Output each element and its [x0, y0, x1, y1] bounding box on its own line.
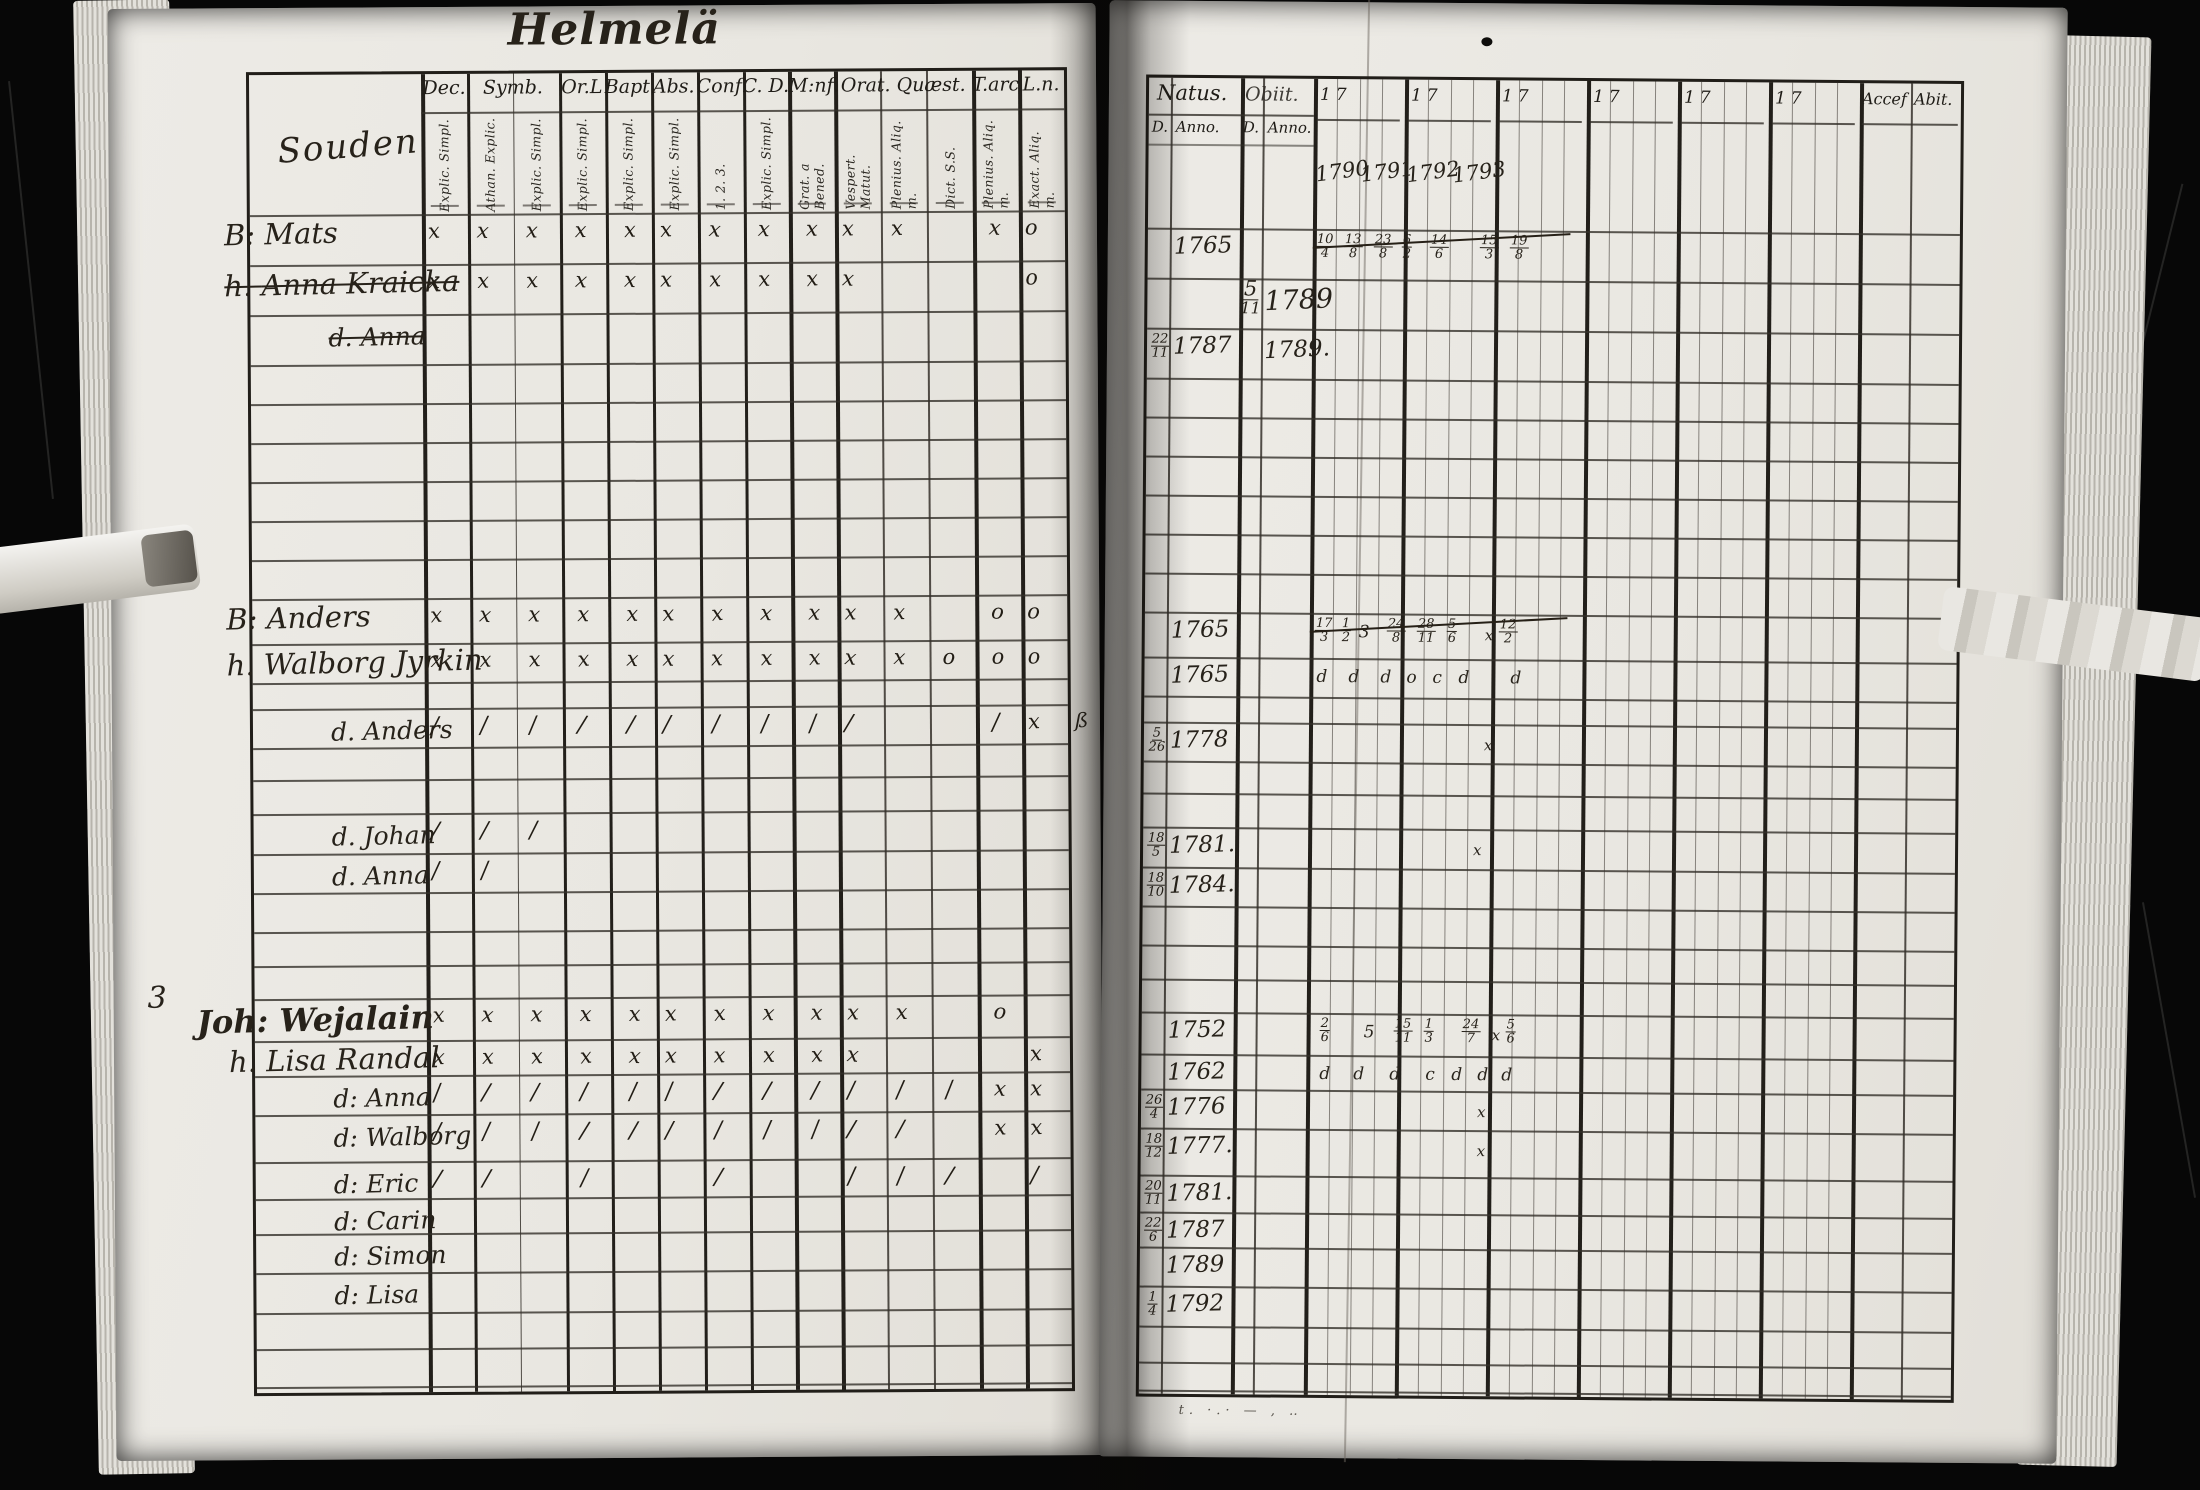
- communion-mark: 3: [1359, 622, 1370, 642]
- fraction-month: 4: [1321, 247, 1329, 260]
- reading-mark: x: [845, 600, 857, 624]
- reading-mark: /: [432, 1080, 442, 1107]
- person-name-text: Joh: Wejalain: [196, 998, 434, 1042]
- household-label: Souden: [276, 121, 420, 172]
- reading-mark: /: [629, 1118, 638, 1144]
- year-subcolumn-line: [1713, 82, 1725, 1398]
- year-subcolumn-line: [1622, 81, 1634, 1397]
- communion-mark: d: [1451, 1065, 1462, 1085]
- reading-mark: x: [994, 1076, 1007, 1101]
- person-name-text: Eric: [366, 1168, 419, 1198]
- reading-mark: /: [481, 1080, 490, 1106]
- column-group-header-10: L.n.: [1018, 73, 1064, 95]
- obiit-day-value: 511: [1240, 278, 1261, 316]
- person-name: d: Walborg: [333, 1121, 471, 1153]
- reading-mark: x: [806, 217, 818, 241]
- fraction-month: 8: [1379, 247, 1387, 260]
- reading-mark: /: [482, 1166, 491, 1192]
- reading-mark: x: [525, 268, 539, 293]
- communion-date: 2811: [1417, 618, 1436, 645]
- reading-mark: /: [665, 1118, 673, 1144]
- reading-mark: /: [896, 1077, 905, 1103]
- person-name-text: Anders: [266, 599, 371, 635]
- reading-mark: /: [664, 1078, 674, 1105]
- fraction-month: 3: [1485, 248, 1493, 261]
- subcolumn-header: Plenius. Aliq. m.: [972, 112, 1019, 210]
- reading-mark: x: [811, 1042, 825, 1067]
- row-line: [251, 360, 1066, 367]
- year-subcolumn-line: [1554, 81, 1566, 1397]
- communion-mark: c: [1425, 1065, 1435, 1085]
- reading-mark: x: [482, 1045, 494, 1069]
- natus-column-header: Natus.: [1157, 81, 1227, 106]
- row-line: [253, 704, 1068, 711]
- row-line: [253, 775, 1068, 782]
- row-line: [1140, 1212, 1952, 1220]
- row-line: [253, 809, 1068, 816]
- reading-mark: x: [530, 1002, 543, 1027]
- person-name: d. Anna: [328, 321, 426, 352]
- reading-mark: /: [482, 1119, 491, 1145]
- reading-mark: /: [431, 713, 439, 739]
- subcolumn-header: Explic. Simpl.: [651, 114, 698, 212]
- row-line: [251, 477, 1066, 484]
- column-group-header-8: Orat. Quæst.: [834, 74, 972, 97]
- person-name: d: Lisa: [334, 1279, 419, 1310]
- reading-mark: x: [712, 1001, 726, 1026]
- fraction-day: 5: [1243, 278, 1259, 300]
- person-prefix: d.: [331, 717, 364, 747]
- reading-mark: x: [525, 218, 538, 242]
- column-group-header-0: Dec.: [421, 77, 467, 99]
- left-stick-tip: [140, 530, 198, 588]
- obiit-anno-value: 1789: [1264, 283, 1334, 317]
- reading-mark: x: [528, 647, 541, 672]
- subcolumn-header: Dict. S.S.: [926, 113, 973, 211]
- reading-mark: x: [476, 218, 489, 243]
- person-name-text: Lisa Randal: [266, 1040, 440, 1078]
- year-subcolumn-line: [1827, 83, 1839, 1399]
- person-prefix: d.: [332, 862, 365, 892]
- communion-mark: x: [1484, 736, 1493, 754]
- fraction-day: 1: [1147, 1291, 1157, 1305]
- column-line: [697, 72, 709, 1390]
- subcolumn-header: Athan. Explic.: [467, 116, 514, 214]
- reading-mark: x: [759, 601, 772, 626]
- communion-date: 13: [1424, 1018, 1434, 1045]
- subcolumn-header-label: Dict. S.S.: [942, 113, 958, 209]
- row-line: [1145, 573, 1957, 581]
- subcolumn-header-label: Athan. Explic.: [483, 116, 499, 212]
- reading-mark: o: [1025, 215, 1038, 239]
- reading-mark: x: [579, 1044, 593, 1069]
- column-line: [880, 71, 890, 1389]
- reading-mark: x: [481, 1002, 495, 1027]
- reading-mark: x: [659, 217, 673, 242]
- year-group-border: [1759, 82, 1773, 1398]
- reading-mark: o: [1024, 265, 1038, 290]
- fraction-day: 24: [1387, 617, 1406, 631]
- reading-mark: x: [623, 268, 636, 293]
- reading-mark: /: [762, 1078, 771, 1104]
- margin-note-left: 3: [148, 981, 167, 1016]
- year-group-border: [1850, 83, 1864, 1399]
- row-line: [1142, 1012, 1954, 1020]
- person-name-text: Anna: [363, 860, 429, 891]
- reading-mark: x: [1027, 709, 1041, 734]
- fraction-day: 18: [1146, 872, 1165, 886]
- person-name-text: Walborg Jyrkin: [263, 643, 483, 682]
- row-line: [1146, 495, 1958, 503]
- column-group-header-9: T.arc: [972, 73, 1018, 95]
- year-subcolumn-line: [1327, 79, 1339, 1395]
- person-name: h. Anna Kraicka: [224, 264, 460, 304]
- fraction-day: 22: [1144, 1217, 1163, 1231]
- reading-mark: x: [428, 269, 440, 293]
- row-line: [1143, 793, 1955, 801]
- column-line: [972, 71, 984, 1389]
- natus-day-value: 14: [1140, 1291, 1164, 1318]
- reading-mark: x: [628, 1002, 640, 1026]
- year-subcolumn-line: [1600, 81, 1612, 1397]
- column-line: [605, 73, 617, 1391]
- subcolumn-header: Explic. Simpl.: [559, 115, 606, 213]
- fraction-month: 11: [1145, 1194, 1162, 1207]
- fraction-day: 15: [1394, 1018, 1413, 1032]
- reading-mark: /: [847, 1116, 856, 1142]
- communion-mark: d: [1510, 668, 1521, 688]
- reading-mark: /: [760, 711, 769, 737]
- reading-mark: /: [811, 1078, 819, 1104]
- subcolumn-header-label: Explic. Simpl.: [666, 115, 682, 211]
- year-prefix-header: 17: [1684, 88, 1716, 108]
- reading-mark: /: [848, 1163, 857, 1189]
- obiit-anno-value: 1789.: [1263, 335, 1330, 364]
- fraction-day: 2: [1320, 1017, 1330, 1031]
- reading-mark: x: [477, 269, 490, 293]
- fraction-month: 12: [1145, 1147, 1162, 1160]
- reading-mark: /: [628, 1079, 637, 1105]
- reading-mark: x: [577, 602, 589, 626]
- row-line: [251, 399, 1066, 406]
- reading-mark: /: [480, 818, 488, 844]
- reading-mark: x: [432, 1003, 446, 1028]
- reading-mark: /: [580, 1165, 588, 1191]
- fraction-month: 3: [1320, 631, 1328, 644]
- column-line: [742, 72, 754, 1390]
- year-subcolumn-line: [1736, 82, 1748, 1398]
- natus-day-value: 1810: [1144, 872, 1168, 899]
- reading-mark: o: [1027, 599, 1041, 624]
- fraction-month: 8: [1515, 248, 1523, 261]
- reading-mark: /: [529, 817, 537, 843]
- fraction-day: 5: [1506, 1018, 1516, 1032]
- row-margin-note: ß: [1075, 708, 1089, 732]
- person-name-text: Mats: [264, 216, 338, 252]
- person-name-text: Simon: [366, 1240, 447, 1271]
- subcolumn-header-label: Exact. Aliq. m.: [1026, 112, 1057, 208]
- communion-date: 198: [1510, 234, 1529, 261]
- reading-mark: x: [1030, 1115, 1044, 1140]
- natus-day-value: 2011: [1141, 1180, 1165, 1207]
- reading-mark: x: [762, 1043, 775, 1067]
- subcolumn-header: Explic. Simpl.: [421, 116, 468, 214]
- fraction-month: 8: [1349, 247, 1357, 260]
- reading-mark: x: [811, 1001, 824, 1025]
- row-line: [1145, 657, 1957, 665]
- year-subcolumn-line: [1463, 80, 1475, 1396]
- natus-anno-value: 1781.: [1166, 1179, 1233, 1207]
- person-prefix: d:: [333, 1170, 366, 1200]
- natus-anno-value: 1776: [1167, 1093, 1226, 1121]
- reading-mark: /: [762, 1117, 771, 1143]
- subcolumn-header: 1. 2. 3.: [697, 114, 744, 212]
- natus-anno-value: 1752: [1167, 1016, 1226, 1044]
- fraction-month: 6: [1448, 632, 1456, 645]
- reading-mark: /: [896, 1116, 904, 1142]
- fraction-month: 6: [1321, 1031, 1329, 1044]
- row-line: [1143, 827, 1955, 835]
- natus-day-value: 2211: [1148, 333, 1172, 360]
- person-name: d: Carin: [334, 1205, 437, 1236]
- communion-mark: d: [1501, 1065, 1512, 1085]
- reading-mark: x: [662, 646, 675, 670]
- column-group-header-5: Conf.: [697, 75, 743, 97]
- person-name: d: Simon: [334, 1240, 447, 1272]
- row-line: [1139, 1390, 1951, 1398]
- year-prefix-header: 17: [1593, 87, 1625, 107]
- right-table: Natus. Obiit. D. Anno. D. Anno. Accef Ab…: [1136, 75, 1964, 1403]
- subcolumn-header: Vespert. Matut.: [835, 113, 882, 211]
- subcolumn-header-label: Explic. Simpl.: [574, 115, 590, 211]
- subcolumn-header-label: Explic. Simpl.: [620, 115, 636, 211]
- reading-mark: x: [760, 646, 773, 670]
- reading-mark: /: [431, 818, 440, 844]
- reading-mark: x: [896, 1000, 909, 1024]
- row-line: [252, 594, 1067, 601]
- row-line: [1146, 417, 1958, 425]
- fraction-day: 18: [1147, 832, 1166, 846]
- row-line: [1143, 867, 1955, 875]
- person-name: B: Mats: [224, 216, 339, 253]
- row-line: [1143, 906, 1955, 914]
- fraction-month: 2: [1342, 631, 1350, 644]
- reading-mark: x: [893, 645, 906, 670]
- communion-mark: d: [1477, 1065, 1488, 1085]
- reading-mark: /: [992, 709, 1001, 735]
- natus-anno-value: 1765: [1170, 616, 1229, 644]
- column-group-header-6: C. D.: [742, 75, 788, 97]
- reading-mark: /: [479, 713, 488, 739]
- communion-mark: d: [1353, 1064, 1364, 1084]
- communion-mark: d: [1380, 667, 1391, 687]
- reading-mark: x: [994, 1115, 1007, 1139]
- person-name-text: Carin: [366, 1205, 437, 1236]
- reading-mark: x: [893, 600, 906, 624]
- natus-day-value: 185: [1144, 832, 1168, 859]
- person-prefix: d.: [331, 822, 364, 852]
- reading-mark: x: [429, 603, 443, 628]
- subcolumn-header-label: Explic. Simpl.: [437, 116, 453, 212]
- reading-mark: /: [844, 710, 853, 736]
- reading-mark: x: [574, 268, 588, 293]
- row-line: [1140, 1286, 1952, 1294]
- year-prefix-header: 17: [1411, 86, 1443, 106]
- reading-mark: /: [711, 711, 719, 737]
- row-line: [252, 516, 1067, 523]
- reading-mark: o: [990, 599, 1005, 624]
- natus-obiit-underline: [1149, 114, 1314, 117]
- scanned-book-spread: Helmelä 3 Souden Dec.Explic. Simpl.Symb.…: [0, 0, 2200, 1490]
- reading-mark: x: [846, 1042, 860, 1067]
- reading-mark: x: [430, 648, 442, 672]
- year-subcolumn-line: [1531, 81, 1543, 1397]
- reading-mark: x: [660, 268, 672, 292]
- reading-mark: x: [806, 266, 820, 291]
- subcolumn-header-label: Grat. a Bened.: [797, 114, 828, 210]
- reading-mark: /: [713, 1078, 723, 1105]
- subcolumn-header-label: Explic. Simpl.: [529, 115, 545, 211]
- person-prefix: d:: [334, 1281, 367, 1311]
- row-line: [1147, 378, 1959, 386]
- obiit-column-header: Obiit.: [1245, 83, 1299, 105]
- natus-day-value: 526: [1145, 727, 1169, 754]
- year-head-underline: [1681, 122, 1764, 124]
- reading-mark: /: [431, 858, 440, 884]
- communion-date: 56: [1506, 1018, 1516, 1045]
- subcolumn-header: Plenius. Aliq. m.: [881, 113, 928, 211]
- natus-anno-value: 1789: [1165, 1251, 1224, 1279]
- reading-mark: /: [433, 1166, 443, 1193]
- row-line: [253, 678, 1068, 685]
- page-title: Helmelä: [508, 3, 721, 55]
- year-head-underline: [1408, 120, 1491, 122]
- year-group-border: [1668, 82, 1682, 1398]
- column-group-header-7: M:nf.: [788, 75, 834, 97]
- communion-date: 1511: [1394, 1018, 1413, 1045]
- communion-date: 238: [1374, 233, 1393, 260]
- reading-mark: x: [709, 267, 721, 291]
- row-line: [250, 310, 1065, 317]
- year-subcolumn-line: [1418, 80, 1430, 1396]
- communion-mark: x: [1473, 841, 1482, 859]
- reading-mark: x: [579, 1002, 591, 1026]
- obiit-anno-header: Anno.: [1268, 119, 1312, 137]
- row-line: [257, 1344, 1072, 1351]
- reading-mark: o: [943, 645, 956, 669]
- natus-anno-value: 1777.: [1166, 1132, 1233, 1160]
- row-line: [1144, 696, 1956, 704]
- fraction-month: 4: [1148, 1305, 1156, 1318]
- row-line: [252, 555, 1067, 562]
- scratch-mark: [8, 81, 54, 499]
- year-prefix-header: 17: [1775, 88, 1807, 108]
- subcolumn-header: Explic. Simpl.: [743, 114, 790, 212]
- row-line: [1148, 278, 1960, 286]
- reading-mark: x: [1029, 1041, 1042, 1066]
- row-line: [1146, 534, 1958, 542]
- scratch-mark: [2142, 902, 2196, 1198]
- communion-date: 248: [1387, 617, 1406, 644]
- person-name-text: Anders: [363, 715, 453, 746]
- row-line: [1144, 722, 1956, 730]
- row-line: [1139, 1362, 1951, 1370]
- reading-mark: x: [713, 1043, 725, 1067]
- row-line: [1142, 945, 1954, 953]
- reading-mark: /: [433, 1119, 441, 1145]
- ink-blot: [1481, 37, 1492, 46]
- communion-mark: d: [1348, 667, 1359, 687]
- communion-mark: 5: [1364, 1022, 1375, 1042]
- reading-mark: x: [626, 646, 639, 671]
- person-name: h. Lisa Randal: [229, 1040, 440, 1079]
- reading-mark: x: [808, 601, 821, 625]
- row-line: [257, 1382, 1072, 1389]
- row-line: [1142, 979, 1954, 987]
- reading-mark: x: [575, 218, 587, 242]
- reading-mark: x: [761, 1001, 774, 1026]
- year-group-border: [1395, 80, 1409, 1396]
- reading-mark: x: [711, 646, 723, 670]
- reading-mark: /: [530, 1118, 540, 1145]
- subcolumn-header-label: Plenius. Aliq. m.: [980, 113, 1011, 209]
- year-subcolumn-line: [1782, 83, 1794, 1399]
- year-head-underline: [1590, 121, 1673, 123]
- reading-mark: /: [577, 712, 587, 739]
- reading-mark: /: [531, 1079, 539, 1105]
- person-name: d: Anna: [333, 1082, 431, 1113]
- row-line: [1141, 1128, 1953, 1136]
- reading-mark: x: [479, 648, 491, 672]
- communion-mark: d: [1389, 1064, 1400, 1084]
- person-name: d. Anna: [332, 860, 430, 891]
- subcolumn-header: Explic. Simpl.: [513, 115, 560, 213]
- row-line: [1146, 456, 1958, 464]
- communion-mark: d: [1319, 1064, 1330, 1084]
- person-prefix: d.: [328, 323, 361, 353]
- reading-mark: x: [478, 602, 492, 627]
- fraction-month: 11: [1240, 300, 1260, 316]
- reading-mark: x: [664, 1043, 677, 1067]
- reading-mark: o: [991, 644, 1004, 668]
- reading-mark: /: [896, 1163, 906, 1190]
- person-name: B: Anders: [226, 599, 371, 636]
- person-prefix: d:: [333, 1084, 366, 1114]
- communion-date: 62: [1402, 234, 1412, 261]
- natus-day-value: 226: [1141, 1217, 1165, 1244]
- fraction-day: 1: [1424, 1018, 1434, 1032]
- row-line: [1140, 1175, 1952, 1183]
- reading-mark: x: [628, 1043, 641, 1068]
- reading-mark: /: [945, 1163, 955, 1190]
- fraction-month: 2: [1403, 248, 1411, 261]
- fraction-month: 11: [1152, 347, 1169, 360]
- reading-mark: x: [708, 217, 722, 242]
- row-line: [1141, 1054, 1953, 1062]
- subcolumn-header-label: Plenius. Aliq. m.: [888, 113, 919, 209]
- person-prefix: B:: [226, 602, 267, 637]
- left-page: Helmelä 3 Souden Dec.Explic. Simpl.Symb.…: [108, 3, 1105, 1461]
- reading-mark: /: [1031, 1162, 1039, 1188]
- reading-mark: x: [664, 1001, 677, 1026]
- communion-mark: x: [1492, 1026, 1501, 1044]
- day-anno-underline: [1149, 144, 1314, 147]
- row-line: [1139, 1326, 1951, 1334]
- reading-mark: x: [891, 216, 904, 241]
- column-group-header-4: Abs.: [651, 75, 697, 97]
- year-prefix-header: 17: [1502, 86, 1534, 106]
- person-name-text: Anna: [365, 1082, 431, 1113]
